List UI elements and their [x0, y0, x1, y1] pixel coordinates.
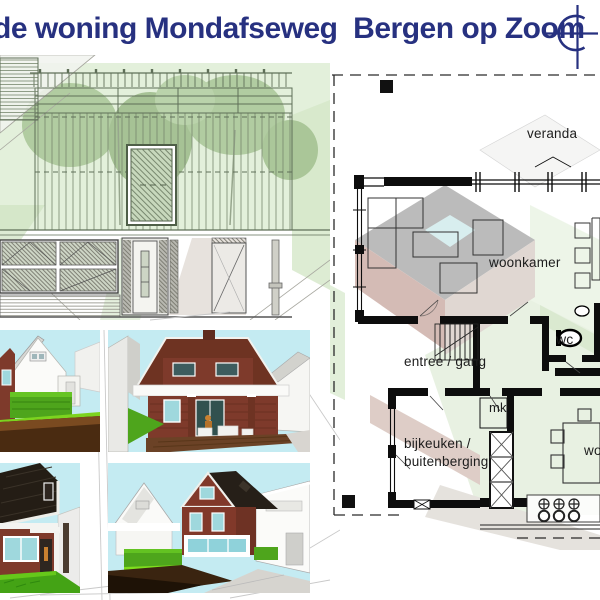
render-view-front-garden: [0, 330, 100, 452]
render-view-street-corner: [108, 463, 310, 593]
render-view-veranda-terrace: [108, 330, 310, 452]
boundary-marker: [380, 80, 393, 93]
label-bijkeuken-line1: bijkeuken /: [404, 436, 471, 451]
render-view-dark-roof-closeup: [0, 463, 80, 593]
presentation-sheet: veranda woonkamer entree / gang wc mk bi…: [0, 0, 600, 600]
label-woonkamer: woonkamer: [489, 255, 561, 270]
label-bijkeuken-line2: buitenberging: [404, 454, 488, 469]
label-veranda: veranda: [527, 126, 577, 141]
left-louvre-panel: [0, 58, 38, 120]
label-entree-gang: entree / gang: [404, 354, 486, 369]
floor-eave-line: [0, 230, 330, 235]
boundary-marker: [342, 495, 355, 508]
page-title: de woning Mondafseweg Bergen op Zoom: [0, 12, 585, 46]
label-wc: wc: [556, 331, 574, 347]
sink-icon: [575, 306, 589, 316]
label-woonkeuken-clipped: wo: [584, 443, 600, 458]
compass-logo-icon: [546, 2, 600, 72]
front-elevation-drawing: [0, 55, 330, 320]
central-window: [127, 145, 176, 225]
label-mk: mk: [489, 400, 507, 415]
